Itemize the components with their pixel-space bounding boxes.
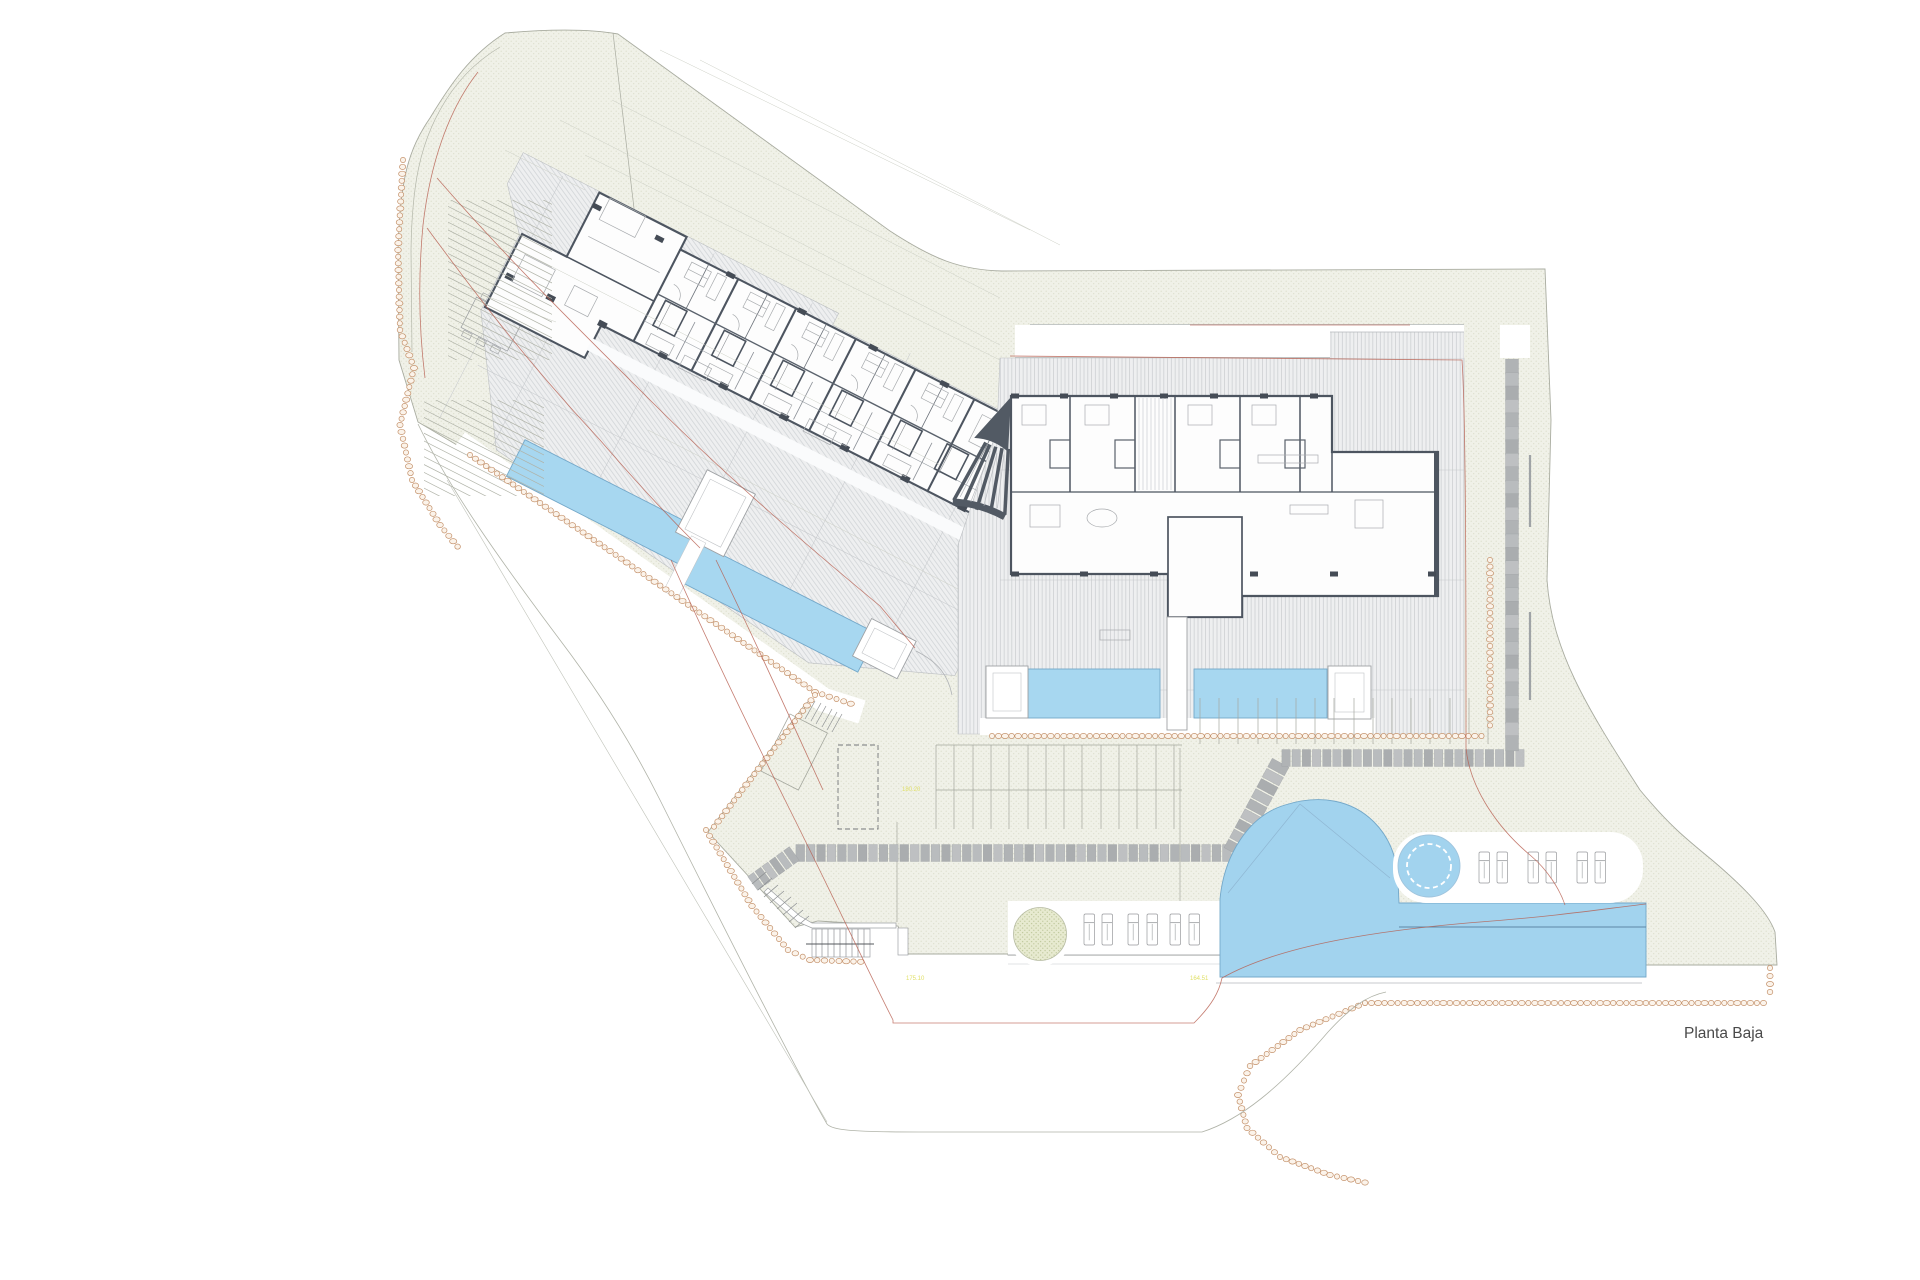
svg-text:180.20: 180.20 (902, 787, 921, 793)
svg-text:Planta Baja: Planta Baja (1684, 1025, 1764, 1042)
svg-text:175.10: 175.10 (906, 976, 925, 982)
svg-text:164.51: 164.51 (1190, 976, 1209, 982)
